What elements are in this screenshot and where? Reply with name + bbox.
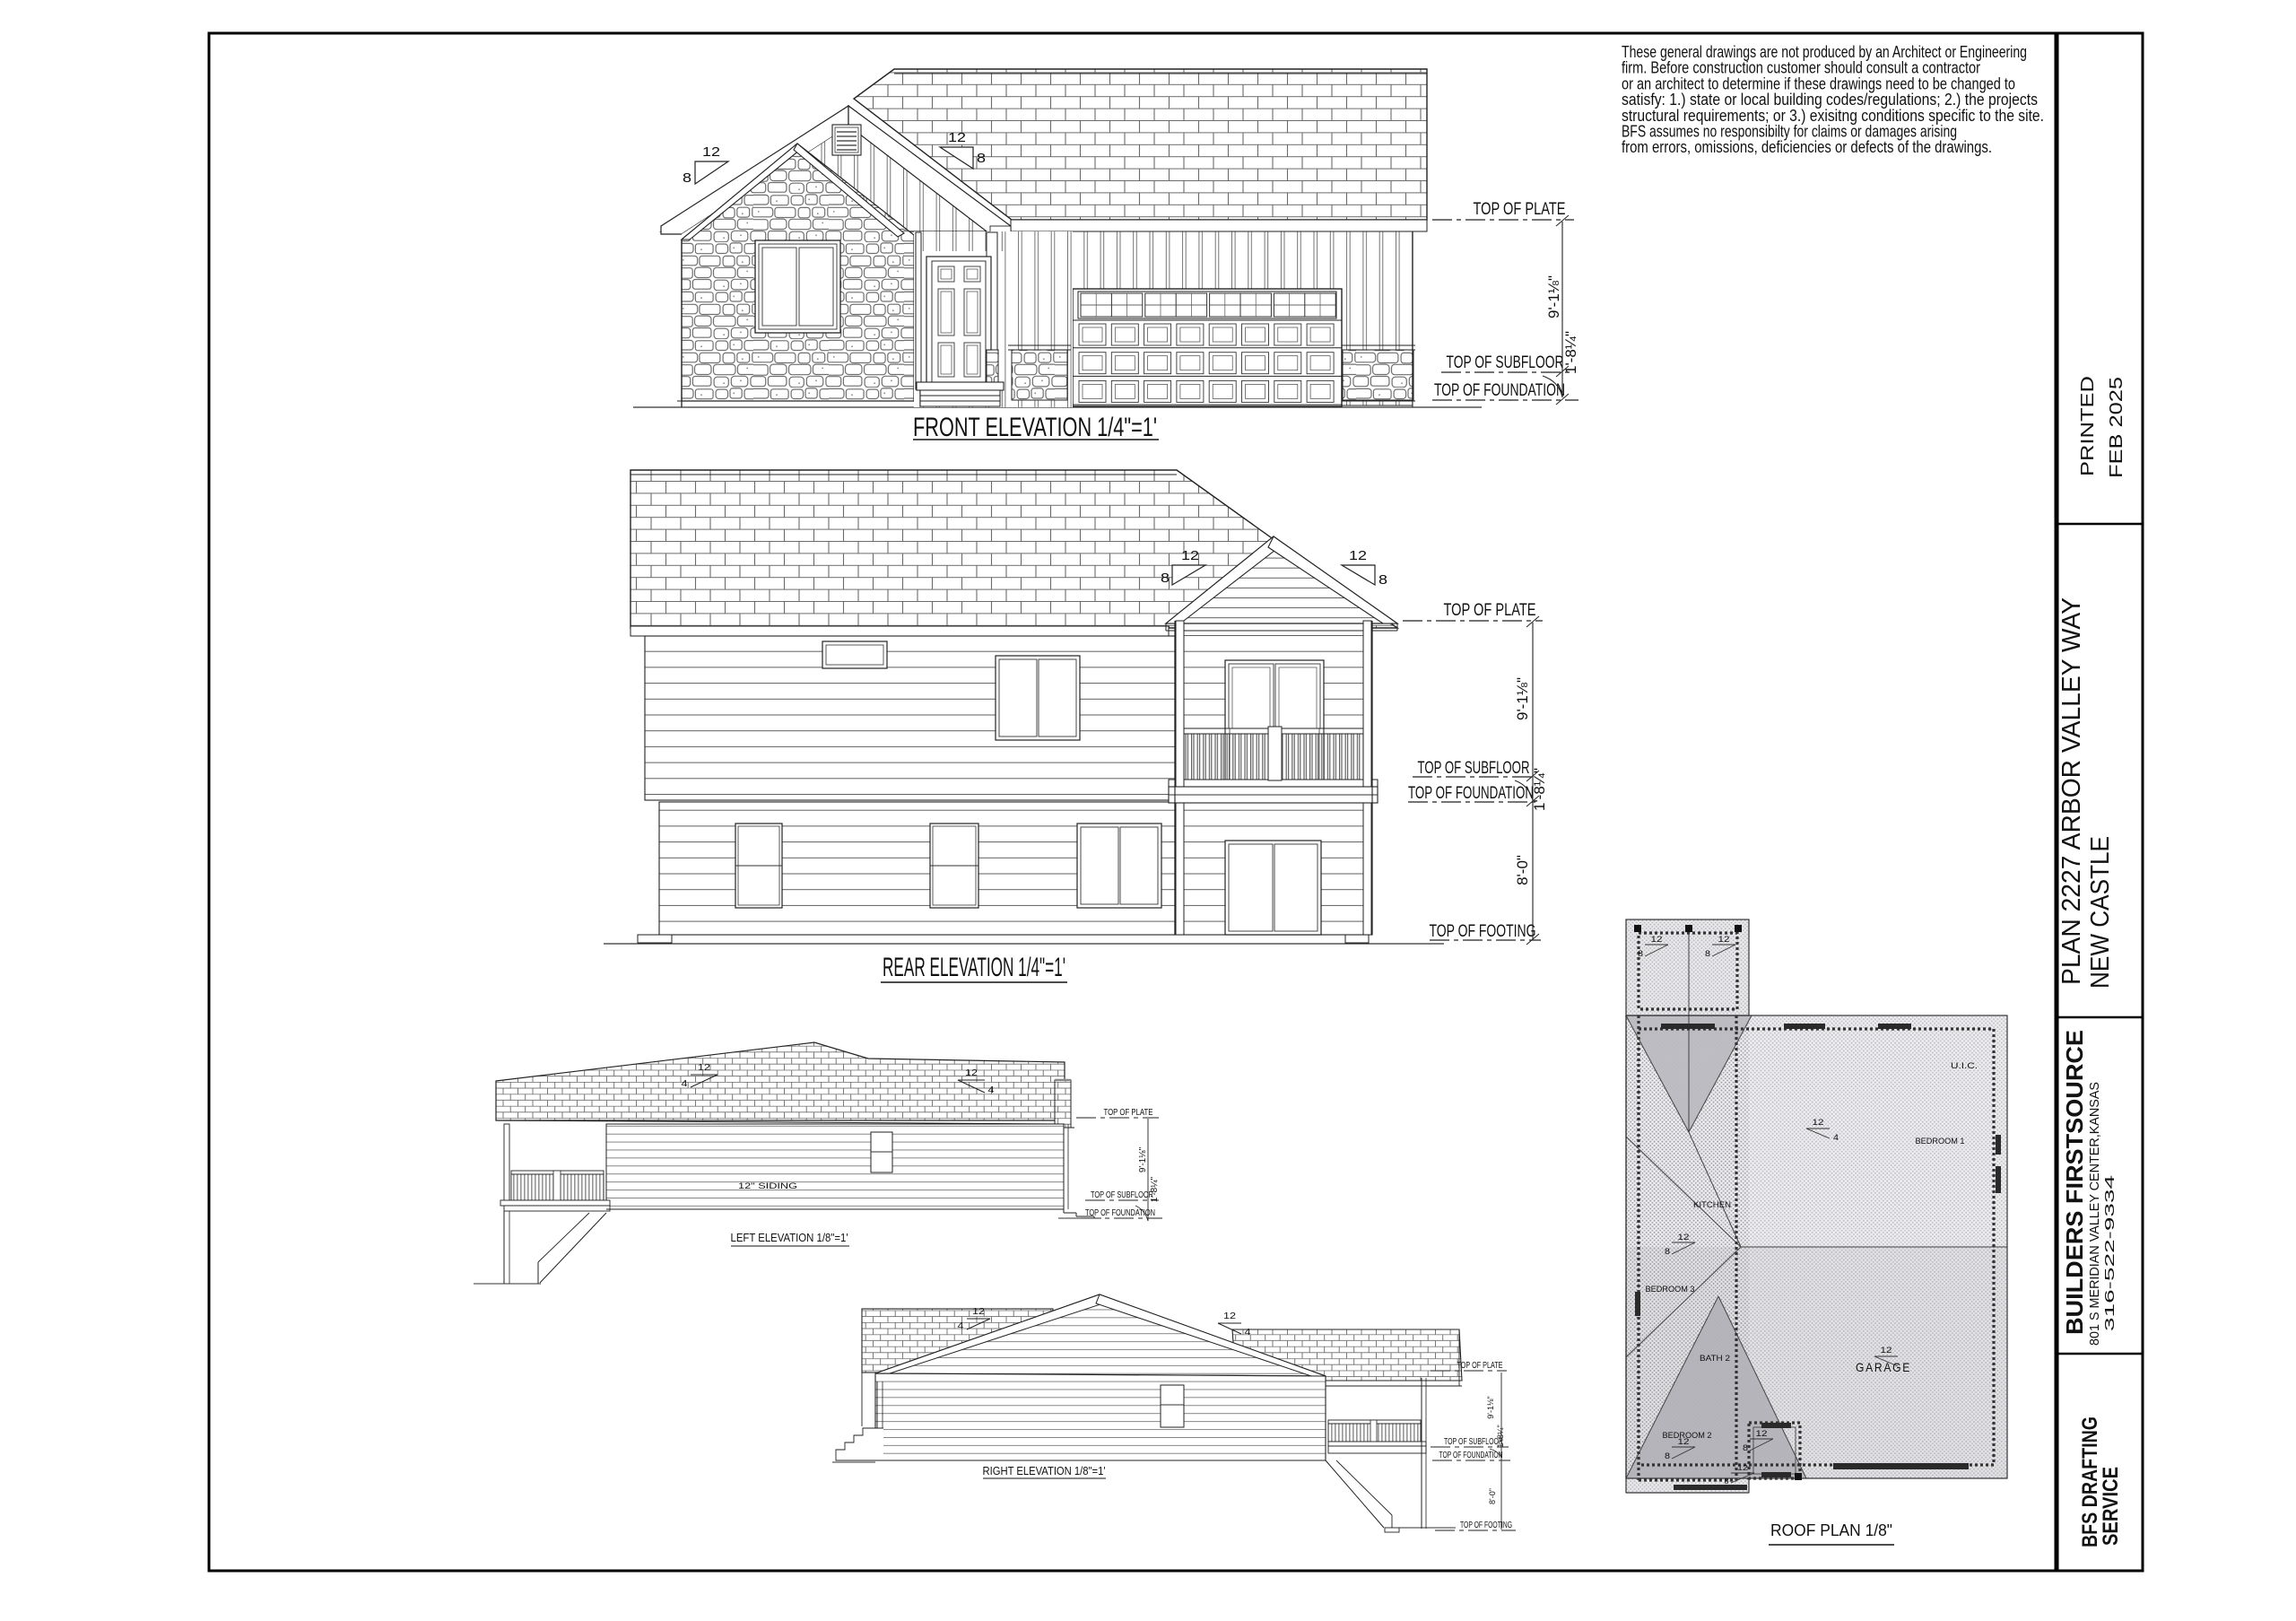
svg-text:TOP OF FOOTING: TOP OF FOOTING <box>1460 1521 1512 1530</box>
svg-text:TOP OF FOUNDATION: TOP OF FOUNDATION <box>1408 784 1534 803</box>
svg-text:BEDROOM 1: BEDROOM 1 <box>1916 1137 1965 1146</box>
svg-text:12" SIDING: 12" SIDING <box>738 1181 797 1190</box>
svg-text:TOP OF FOUNDATION: TOP OF FOUNDATION <box>1439 1451 1503 1460</box>
svg-text:12: 12 <box>972 1307 986 1317</box>
svg-text:8: 8 <box>683 170 691 186</box>
svg-text:12: 12 <box>1678 1437 1690 1446</box>
svg-text:1'-8¼": 1'-8¼" <box>1531 768 1548 811</box>
svg-text:4: 4 <box>1245 1328 1252 1338</box>
svg-text:8'-0": 8'-0" <box>1514 855 1531 885</box>
svg-text:801 S MERIDIAN VALLEY CENTER,K: 801 S MERIDIAN VALLEY CENTER,KANSAS <box>2087 1082 2102 1346</box>
svg-text:GARAGE: GARAGE <box>1856 1360 1911 1374</box>
svg-text:TOP OF FOUNDATION: TOP OF FOUNDATION <box>1434 381 1565 400</box>
svg-text:12: 12 <box>698 1063 711 1073</box>
svg-text:TOP OF SUBFLOOR: TOP OF SUBFLOOR <box>1444 1437 1503 1447</box>
svg-text:1'-8¼": 1'-8¼" <box>1562 331 1579 374</box>
svg-text:12: 12 <box>1756 1429 1768 1438</box>
svg-text:8: 8 <box>1665 1247 1670 1256</box>
svg-text:NEW CASTLE: NEW CASTLE <box>2086 836 2115 989</box>
svg-text:12: 12 <box>948 130 966 145</box>
svg-text:FEB 2025: FEB 2025 <box>2107 377 2126 478</box>
svg-text:TOP OF PLATE: TOP OF PLATE <box>1444 601 1536 620</box>
svg-text:TOP OF PLATE: TOP OF PLATE <box>1474 200 1566 219</box>
svg-text:FRONT ELEVATION 1/4"=1': FRONT ELEVATION 1/4"=1' <box>913 413 1157 442</box>
svg-text:12: 12 <box>1881 1346 1892 1355</box>
svg-text:BEDROOM 3: BEDROOM 3 <box>1646 1285 1695 1294</box>
svg-text:12: 12 <box>1223 1312 1237 1321</box>
svg-text:TOP OF FOOTING: TOP OF FOOTING <box>1430 922 1536 941</box>
svg-text:12: 12 <box>1718 935 1730 944</box>
svg-text:12: 12 <box>702 144 720 160</box>
svg-text:REAR ELEVATION 1/4"=1': REAR ELEVATION 1/4"=1' <box>883 953 1065 982</box>
svg-text:KITCHEN: KITCHEN <box>1693 1200 1731 1209</box>
svg-text:8: 8 <box>977 151 986 166</box>
svg-text:12: 12 <box>965 1068 978 1078</box>
svg-text:12: 12 <box>1813 1118 1824 1127</box>
svg-text:9'-1⅛": 9'-1⅛" <box>1514 677 1531 720</box>
svg-text:4: 4 <box>1833 1133 1839 1142</box>
svg-text:TOP OF PLATE: TOP OF PLATE <box>1104 1108 1153 1118</box>
svg-text:8: 8 <box>1638 949 1643 958</box>
svg-text:TOP OF PLATE: TOP OF PLATE <box>1457 1361 1503 1371</box>
svg-text:9'-1⅛": 9'-1⅛" <box>1545 275 1562 318</box>
svg-text:4: 4 <box>988 1085 996 1095</box>
svg-text:LEFT ELEVATION 1/8"=1': LEFT ELEVATION 1/8"=1' <box>731 1231 848 1244</box>
svg-text:8'-0": 8'-0" <box>1488 1488 1497 1504</box>
svg-text:4: 4 <box>682 1079 689 1089</box>
svg-text:12: 12 <box>1678 1233 1690 1242</box>
svg-text:PLAN 2227 ARBOR VALLEY WAY: PLAN 2227 ARBOR VALLEY WAY <box>2057 597 2086 985</box>
svg-text:TOP OF SUBFLOOR: TOP OF SUBFLOOR <box>1091 1190 1153 1200</box>
svg-text:8: 8 <box>1705 949 1710 958</box>
svg-text:12: 12 <box>1349 548 1367 563</box>
svg-text:9'-1⅛": 9'-1⅛" <box>1138 1146 1148 1172</box>
svg-text:8: 8 <box>1161 571 1170 586</box>
svg-text:12: 12 <box>1737 1464 1749 1472</box>
svg-text:316-522-9334: 316-522-9334 <box>2102 1175 2118 1331</box>
svg-text:12: 12 <box>1181 548 1199 563</box>
svg-text:PRINTED: PRINTED <box>2078 376 2098 476</box>
svg-text:U.I.C.: U.I.C. <box>1951 1061 1978 1070</box>
svg-text:12: 12 <box>1651 935 1663 944</box>
svg-text:TOP OF SUBFLOOR: TOP OF SUBFLOOR <box>1418 759 1530 778</box>
svg-text:8: 8 <box>1743 1443 1748 1452</box>
svg-text:SERVICE: SERVICE <box>2099 1467 2123 1546</box>
svg-text:RIGHT ELEVATION 1/8"=1': RIGHT ELEVATION 1/8"=1' <box>983 1464 1106 1477</box>
svg-text:1'-8¼": 1'-8¼" <box>1149 1176 1160 1202</box>
svg-text:9'-1⅛": 9'-1⅛" <box>1486 1396 1495 1418</box>
svg-text:8: 8 <box>1665 1451 1670 1460</box>
svg-text:1'-8¼": 1'-8¼" <box>1496 1425 1505 1447</box>
svg-text:from errors, omissions, defici: from errors, omissions, deficiencies or … <box>1622 138 1992 156</box>
svg-text:8: 8 <box>1378 572 1387 588</box>
svg-text:TOP OF SUBFLOOR: TOP OF SUBFLOOR <box>1447 353 1564 372</box>
svg-text:4: 4 <box>958 1321 965 1331</box>
svg-text:BATH 2: BATH 2 <box>1700 1354 1730 1363</box>
svg-text:8: 8 <box>1725 1477 1730 1486</box>
svg-text:BUILDERS FIRSTSOURCE: BUILDERS FIRSTSOURCE <box>2061 1030 2088 1335</box>
svg-text:ROOF PLAN 1/8": ROOF PLAN 1/8" <box>1770 1521 1892 1539</box>
